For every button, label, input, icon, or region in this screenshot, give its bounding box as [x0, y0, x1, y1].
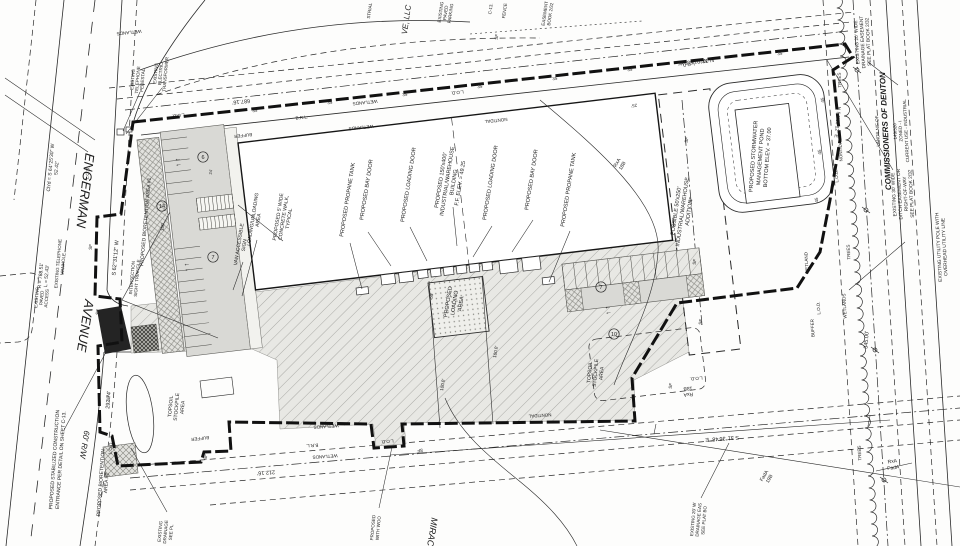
- site-plan-stage: Engerman Avenue Industrial/Warehouse Sit…: [0, 0, 960, 546]
- trees-label: TREES: [857, 445, 863, 460]
- existing-telephone-pedestal: EXISTINGTELEPHONEPEDESTAL: [129, 66, 146, 94]
- trees-label: TREES: [846, 244, 852, 259]
- lod-label: L.O.D.: [689, 376, 702, 382]
- entrance-crosshatch-pad: [131, 324, 159, 353]
- svg-text:7: 7: [599, 285, 602, 291]
- silt-fence-label: SF: [203, 454, 209, 460]
- silt-fence-label: SF: [417, 448, 423, 453]
- lod-label: L.O.D.: [380, 439, 393, 445]
- flow-arrows-icon: ↑ ↑: [174, 157, 182, 167]
- dim-345: 345.00': [863, 331, 870, 349]
- contour-45: 45: [814, 197, 819, 203]
- contour-45: 45: [820, 97, 825, 103]
- svg-text:6: 6: [201, 155, 204, 161]
- dim-55: 55': [429, 292, 435, 299]
- curve-radius-data: R = 788.51'L = 52.43': [37, 263, 51, 290]
- svg-text:7: 7: [211, 255, 214, 261]
- silt-fence-label: SF: [106, 395, 112, 401]
- silt-fence-label: SF: [88, 244, 94, 250]
- svg-text:10: 10: [611, 332, 617, 338]
- silt-fence-label: SF: [688, 196, 694, 203]
- svg-text:14: 14: [159, 204, 165, 210]
- drainage-easement-se: EXISTING 20' WDRAINAGE EASSEE PLAT BO: [689, 502, 708, 538]
- lod-label: L.O.D.: [834, 169, 840, 182]
- drainage-easement-ne: EXISTING 20' WIDEDRAINAGE EASEMENTSEE PL…: [853, 15, 873, 69]
- silt-fence-label: SF: [684, 136, 690, 143]
- dim-25: 25': [631, 103, 637, 109]
- silt-fence-label: SF: [494, 33, 500, 40]
- silt-fence-label: SF: [698, 318, 704, 325]
- trees-label: TREES: [837, 72, 843, 87]
- contour-45: 45: [817, 149, 822, 155]
- silt-fence-label: SF: [95, 309, 101, 315]
- lod-label: L.O.D.: [816, 301, 822, 314]
- silt-fence-label: SF: [692, 258, 698, 265]
- silt-fence-label: SF: [668, 382, 674, 389]
- flow-arrows-icon: ↑ ↑: [604, 305, 612, 315]
- dim-150: 150': [160, 222, 166, 231]
- flow-arrows-icon: ↑ ↑: [183, 262, 191, 272]
- buffer-label: BUFFER: [809, 318, 815, 337]
- brl-label: B.R.L.: [306, 443, 319, 449]
- soil-label-rxa-2: RxA18B: [682, 385, 693, 398]
- dim-24: 24': [208, 169, 213, 175]
- dim-212: 212.16': [257, 468, 275, 475]
- site-plan-drawing: ENGERMANAVENUE60' R/WCh'd = S 64°25'30" …: [0, 0, 960, 546]
